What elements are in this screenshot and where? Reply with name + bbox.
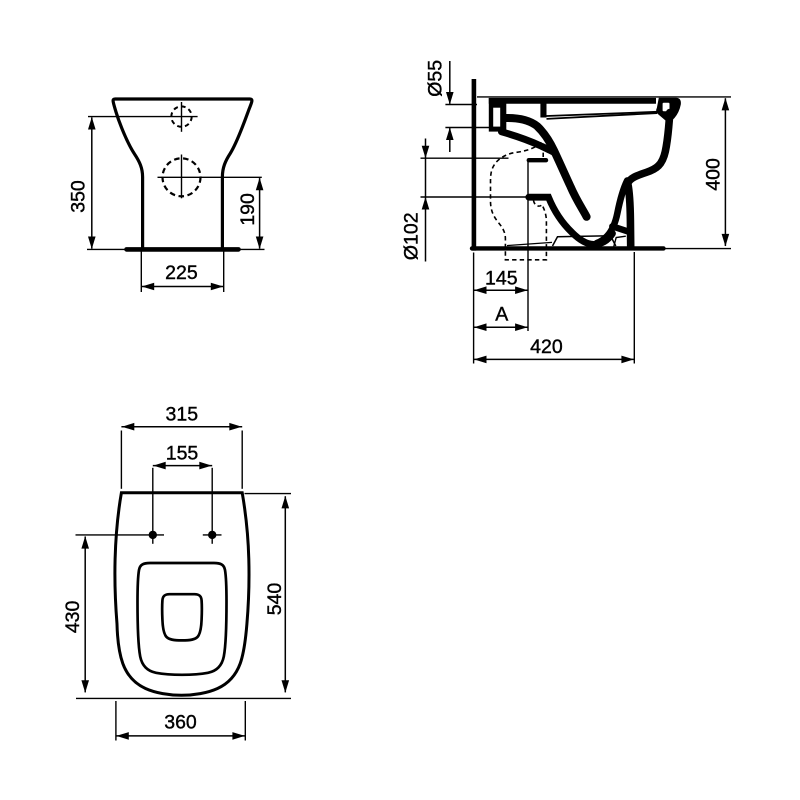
svg-text:Ø55: Ø55 [425, 60, 447, 97]
svg-text:540: 540 [264, 583, 286, 616]
svg-text:430: 430 [62, 600, 84, 633]
svg-text:360: 360 [164, 711, 197, 733]
svg-text:A: A [495, 303, 508, 325]
svg-text:155: 155 [166, 442, 199, 464]
svg-text:315: 315 [166, 403, 199, 425]
svg-text:190: 190 [237, 193, 259, 226]
svg-text:400: 400 [703, 158, 725, 191]
svg-text:350: 350 [68, 180, 90, 213]
svg-text:145: 145 [485, 267, 518, 289]
svg-text:420: 420 [530, 336, 563, 358]
svg-text:Ø102: Ø102 [401, 212, 423, 260]
svg-text:225: 225 [165, 262, 198, 284]
